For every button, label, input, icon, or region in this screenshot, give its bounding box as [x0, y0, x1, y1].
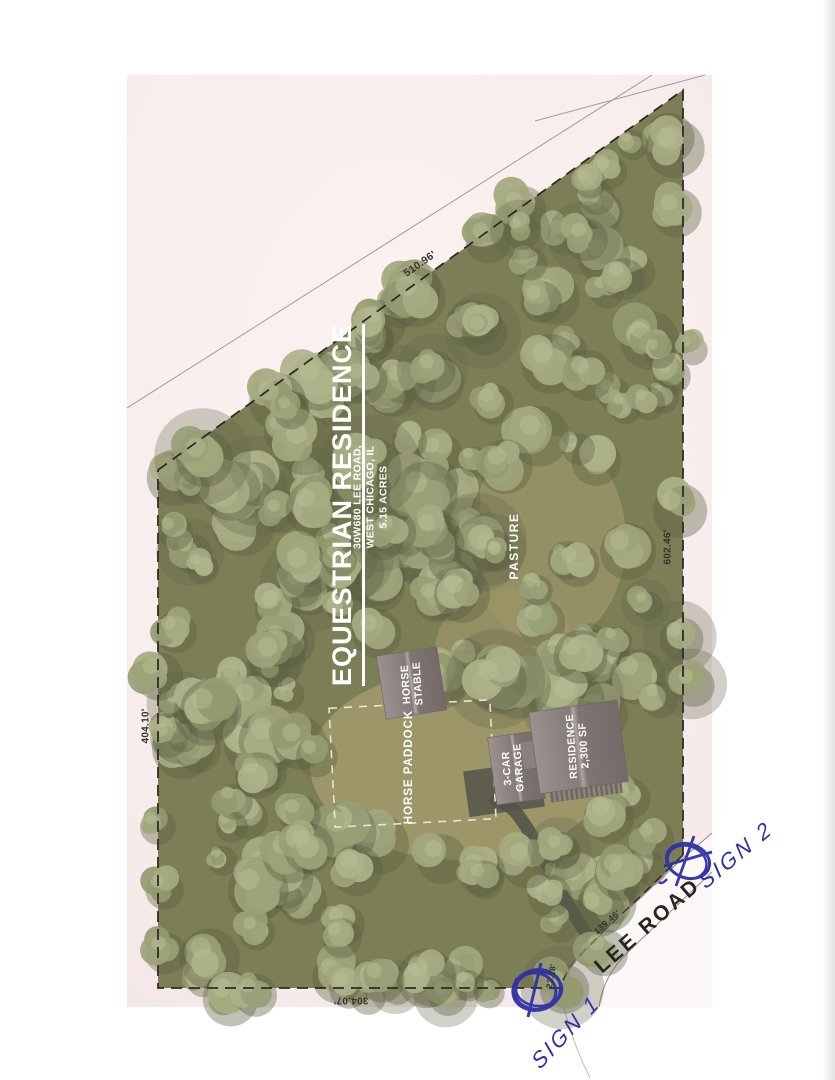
pasture-label: PASTURE	[507, 513, 521, 580]
site-plan-drawing	[0, 0, 835, 1080]
dimension-west: 404.10'	[141, 708, 152, 743]
address-block: 30W680 LEE ROAD, WEST CHICAGO, IL 5.15 A…	[352, 445, 391, 549]
horse-stable-label: HORSE STABLE	[399, 661, 426, 706]
horse-paddock-label: HORSE PADDOCK	[403, 710, 415, 824]
scanned-site-plan-page: EQUESTRIAN RESIDENCE 30W680 LEE ROAD, WE…	[0, 0, 835, 1080]
scanner-shadow-edge	[823, 0, 835, 1080]
acreage-label: 5.15 ACRES	[378, 445, 391, 549]
garage-label: 3-CAR GARAGE	[499, 743, 526, 793]
dimension-east: 602.46'	[663, 529, 674, 564]
address-line-1: 30W680 LEE ROAD,	[352, 445, 365, 549]
address-line-2: WEST CHICAGO, IL	[365, 445, 378, 549]
residence-label: RESIDENCE 2,300 SF	[564, 713, 592, 779]
dimension-south: 304.07'	[333, 995, 368, 1006]
